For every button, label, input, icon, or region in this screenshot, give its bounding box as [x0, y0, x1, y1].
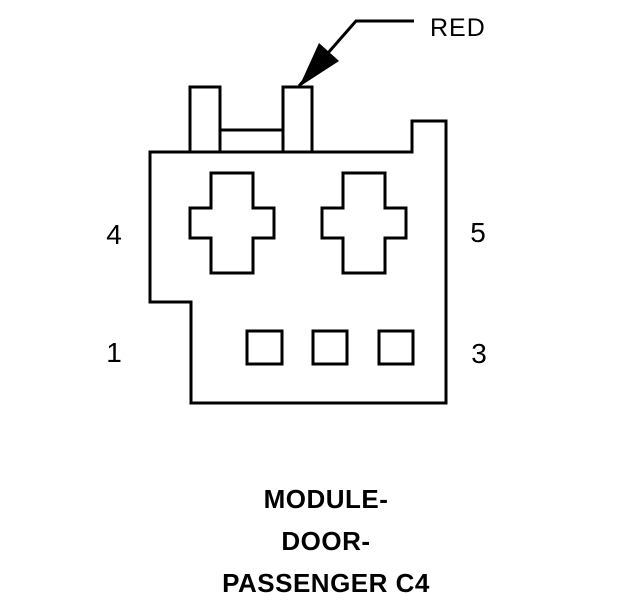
caption-line-1: MODULE- — [150, 478, 502, 520]
pin-label-5: 5 — [463, 218, 493, 248]
connector-caption: MODULE- DOOR- PASSENGER C4 — [150, 478, 502, 600]
connector-tab-left — [190, 87, 220, 153]
cavity-cross-left — [190, 173, 274, 273]
connector-pinout-diagram: RED 4 5 1 3 MODULE- DOOR- PASSENGER C4 — [0, 0, 624, 600]
cavity-square-1 — [247, 331, 282, 364]
wire-color-label: RED — [430, 16, 486, 41]
cavity-cross-right — [322, 173, 406, 273]
cavity-square-3 — [379, 331, 413, 364]
cavity-square-2 — [313, 331, 347, 364]
red-wire-arrowhead — [299, 43, 339, 87]
pin-label-1: 1 — [99, 338, 129, 368]
connector-tab-right — [283, 87, 312, 153]
connector-body-outline — [150, 121, 446, 403]
caption-line-3: PASSENGER C4 — [150, 562, 502, 600]
pin-label-3: 3 — [464, 339, 494, 369]
caption-line-2: DOOR- — [150, 520, 502, 562]
pin-label-4: 4 — [99, 220, 129, 250]
